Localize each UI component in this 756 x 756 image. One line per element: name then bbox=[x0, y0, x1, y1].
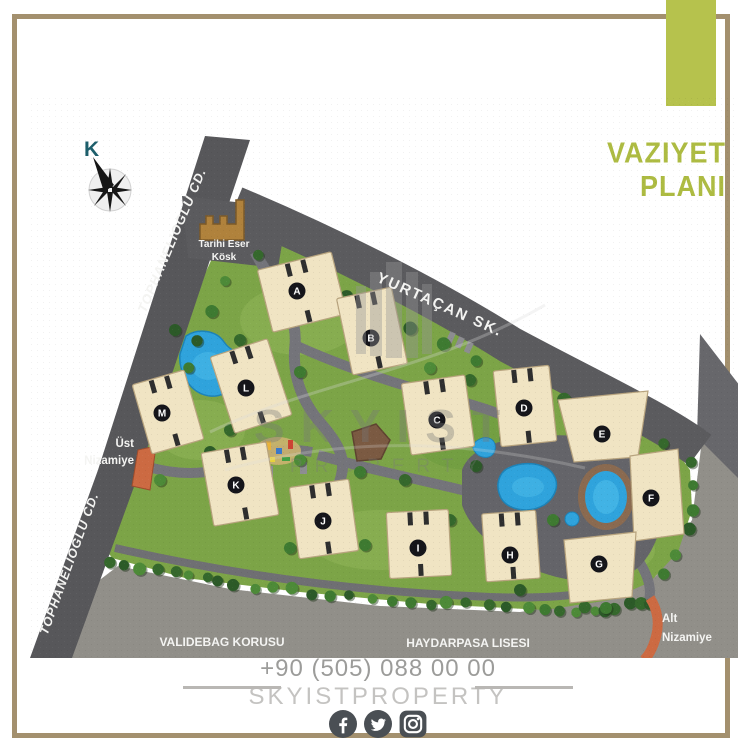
site-plan-map: ABCDEFGHIJKLM SKYIST PROPERTY TOPHANELIO… bbox=[0, 0, 756, 756]
footer-divider-right bbox=[475, 686, 573, 689]
ust-nizamiye-label-line1: Üst bbox=[115, 437, 134, 450]
kosk-label-line2: Kösk bbox=[212, 252, 237, 263]
footer-divider-left bbox=[183, 686, 281, 689]
alt-nizamiye-label-line1: Alt bbox=[662, 613, 678, 625]
facebook-icon[interactable] bbox=[329, 710, 357, 738]
watermark-line1: SKYIST bbox=[254, 400, 516, 452]
watermark-line2: PROPERTY bbox=[290, 456, 490, 477]
kosk-label-line1: Tarihi Eser bbox=[199, 239, 250, 250]
footer: +90 (505) 088 00 00 SKYISTPROPERTY bbox=[0, 655, 756, 710]
map-texture bbox=[28, 96, 738, 658]
compass-north-label: K bbox=[84, 138, 99, 161]
footer-phone: +90 (505) 088 00 00 bbox=[0, 655, 756, 683]
area-label-validebag: VALIDEBAG KORUSU bbox=[159, 635, 284, 649]
social-links bbox=[0, 710, 756, 738]
footer-brand: SKYISTPROPERTY bbox=[0, 683, 756, 710]
alt-nizamiye-label-line2: Nizamiye bbox=[662, 632, 712, 644]
instagram-icon[interactable] bbox=[399, 710, 427, 738]
twitter-icon[interactable] bbox=[364, 710, 392, 738]
area-label-haydarpasa: HAYDARPASA LISESI bbox=[406, 636, 530, 650]
ust-nizamiye-label-line2: Nizamiye bbox=[84, 455, 134, 467]
